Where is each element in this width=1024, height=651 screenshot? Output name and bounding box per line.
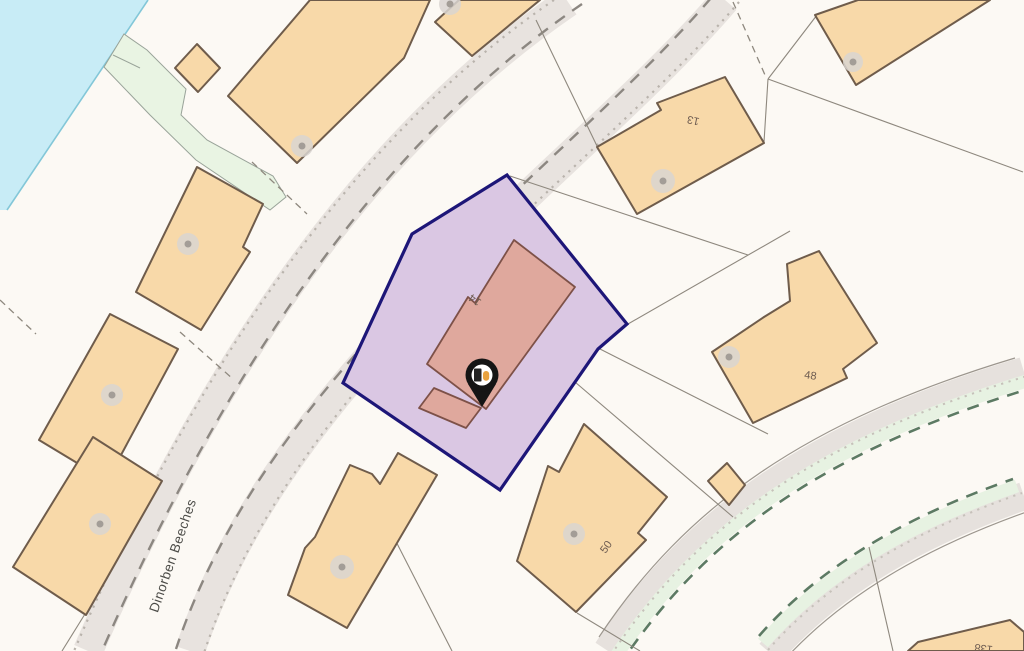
building-138 [908,620,1024,651]
map-viewport: 14 13 48 50 138 Dinorben Beeches [0,0,1024,651]
house-number-48-label: 48 [804,369,818,383]
water-area [0,0,148,210]
building-top-right [815,0,990,85]
map-canvas: 14 13 48 50 138 Dinorben Beeches [0,0,1024,651]
building-48 [712,251,877,423]
building-bottom-center [288,453,437,628]
house-number-13-label: 13 [686,113,700,127]
road-curved-southeast [599,358,1024,651]
